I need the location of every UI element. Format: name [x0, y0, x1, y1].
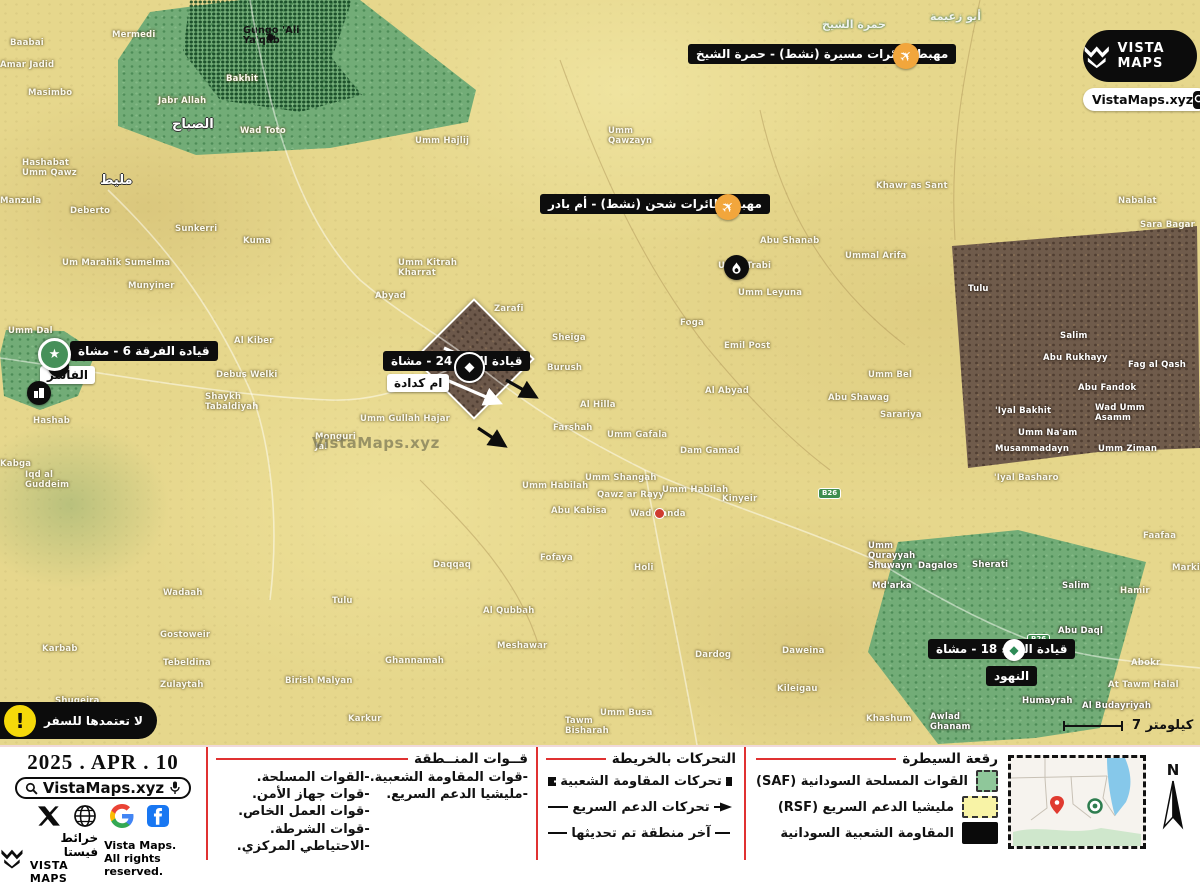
- globe-icon[interactable]: [73, 804, 97, 828]
- movement-legend-row: تحركات الدعم السريع: [546, 794, 736, 820]
- control-label: مليشيا الدعم السريع (RSF): [778, 800, 954, 815]
- rights-line2: All rights reserved.: [104, 852, 206, 878]
- scale-bar-line: [1062, 719, 1124, 733]
- callout-div6-hq: قيادة الفرقة 6 - مشاة: [70, 341, 218, 361]
- brand-pill[interactable]: VISTA MAPS: [1083, 30, 1197, 82]
- search-button[interactable]: [1193, 91, 1200, 109]
- footer-brand-section: 2025 . APR . 10 VistaMaps.xyz: [0, 747, 206, 860]
- forces-item: -قوات المقاومة الشعبية.: [370, 769, 528, 786]
- title-rule: [756, 758, 896, 760]
- legend-movements-section: التحركات بالخريطة تحركات المقاومة الشعبي…: [538, 747, 744, 860]
- site-search-pill[interactable]: VistaMaps.xyz: [1083, 88, 1200, 111]
- legend-control-section: رقعة السيطرة القوات المسلحة السودانية (S…: [746, 747, 1008, 860]
- warning-icon: !: [2, 703, 38, 739]
- map-canvas[interactable]: BaabaiAmar JadidMasimboMermediGungo 'Ali…: [0, 0, 1200, 745]
- hq-diamond-icon[interactable]: ◆: [454, 352, 485, 383]
- facebook-icon[interactable]: [147, 805, 169, 827]
- callout-bde18-hq: قيادة اللواء 18 - مشاة: [928, 639, 1075, 659]
- control-legend-row: القوات المسلحة السودانية (SAF): [756, 768, 998, 794]
- movements-title: التحركات بالخريطة: [612, 751, 736, 767]
- footer-logo-row[interactable]: خرائط فيستا VISTA MAPS Vista Maps. All r…: [0, 831, 206, 885]
- forces-item: -قوات جهاز الأمن.: [216, 786, 370, 803]
- control-legend-row: المقاومة الشعبية السودانية: [756, 820, 998, 846]
- building-icon[interactable]: [27, 381, 51, 405]
- social-icons-row: [38, 804, 169, 828]
- movement-label: آخر منطقة تم تحديثها: [567, 826, 714, 841]
- forces-secondary-list: -قوات المقاومة الشعبية.-مليشيا الدعم الس…: [370, 769, 528, 855]
- site-url: VistaMaps.xyz: [1092, 92, 1193, 107]
- legend-forces-section: قــوات المنــطقة -القوات المسلحة.-قوات ج…: [208, 747, 536, 860]
- forces-title: قــوات المنــطقة: [414, 751, 528, 767]
- warning-text: لا تعتمدها للسفر: [44, 714, 143, 728]
- updated-area-dot: [654, 508, 665, 519]
- mic-icon[interactable]: [169, 781, 181, 795]
- label-en-nahud: النهود: [986, 666, 1037, 686]
- control-color-swatch: [962, 796, 998, 818]
- vista-maps-logo-icon: [0, 846, 24, 870]
- footer-site-url: VistaMaps.xyz: [43, 779, 164, 797]
- airplane-icon[interactable]: ✈: [893, 43, 919, 69]
- rights-line1: Vista Maps.: [104, 839, 206, 852]
- forces-item: -قوات الشرطة.: [216, 821, 370, 838]
- footer-bar: 2025 . APR . 10 VistaMaps.xyz: [0, 745, 1200, 860]
- hq-star-icon[interactable]: ★: [38, 338, 71, 371]
- map-watermark: VistaMaps.xyz: [312, 434, 440, 452]
- title-rule: [546, 758, 606, 760]
- resistance-movement-arrow: [478, 428, 505, 446]
- label-umm-keddada: ام كدادة: [387, 374, 449, 392]
- control-label: القوات المسلحة السودانية (SAF): [756, 774, 968, 789]
- north-arrow-icon: [1160, 779, 1186, 831]
- control-color-swatch: [976, 770, 998, 792]
- date-label: 2025 . APR . 10: [27, 750, 179, 775]
- forces-item: -القوات المسلحة.: [216, 769, 370, 786]
- village-dot: [267, 34, 274, 41]
- roads-and-arrows-layer: [0, 0, 1200, 745]
- movement-label: تحركات المقاومة الشعبية: [556, 774, 726, 789]
- movement-label: تحركات الدعم السريع: [568, 800, 713, 815]
- scale-bar: كيلومتر 7: [1062, 718, 1193, 733]
- road-badge: B26: [818, 488, 841, 499]
- vista-maps-logo-icon: [1083, 41, 1110, 71]
- scale-label: كيلومتر 7: [1132, 718, 1193, 733]
- forces-item: -مليشيا الدعم السريع.: [370, 786, 528, 803]
- resistance-movement-arrow: [506, 380, 536, 397]
- x-twitter-icon[interactable]: [38, 805, 60, 827]
- google-icon[interactable]: [110, 804, 134, 828]
- footer-brand-arabic: خرائط فيستا: [30, 831, 98, 859]
- minimap-section: N: [1008, 747, 1200, 860]
- page: BaabaiAmar JadidMasimboMermediGungo 'Ali…: [0, 0, 1200, 860]
- north-indicator: N: [1160, 761, 1186, 831]
- hq-diamond-icon-green[interactable]: ◆: [1003, 639, 1025, 661]
- title-rule: [216, 758, 408, 760]
- forces-item: -قوات العمل الخاص.: [216, 803, 370, 820]
- airplane-icon[interactable]: ✈: [715, 194, 741, 220]
- control-label: المقاومة الشعبية السودانية: [780, 826, 954, 841]
- north-label: N: [1167, 761, 1180, 779]
- search-icon: [25, 782, 38, 795]
- search-icon: [1194, 94, 1200, 105]
- brand-title: VISTA MAPS: [1117, 41, 1197, 71]
- forces-primary-list: -القوات المسلحة.-قوات جهاز الأمن.-قوات ا…: [216, 769, 370, 855]
- movement-legend-row: آخر منطقة تم تحديثها: [546, 820, 736, 846]
- travel-warning-pill: ! لا تعتمدها للسفر: [0, 702, 157, 739]
- control-title: رقعة السيطرة: [902, 751, 998, 767]
- fire-icon[interactable]: [724, 255, 749, 280]
- control-color-swatch: [962, 822, 998, 844]
- movement-legend-row: تحركات المقاومة الشعبية: [546, 768, 736, 794]
- forces-item: -الاحتياطي المركزي.: [216, 838, 370, 855]
- footer-search-pill[interactable]: VistaMaps.xyz: [15, 777, 191, 799]
- sudan-minimap: [1008, 755, 1146, 849]
- footer-brand-english: VISTA MAPS: [30, 859, 98, 885]
- control-legend-row: مليشيا الدعم السريع (RSF): [756, 794, 998, 820]
